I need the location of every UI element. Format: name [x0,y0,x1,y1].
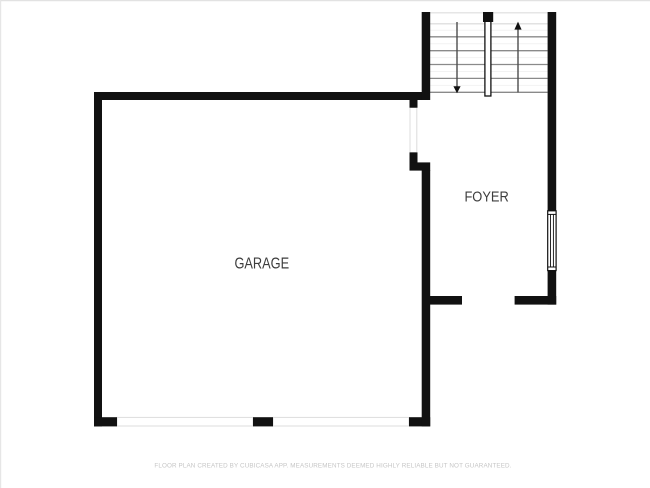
svg-text:FOYER: FOYER [464,189,508,205]
svg-text:FLOOR PLAN CREATED BY CUBICASA: FLOOR PLAN CREATED BY CUBICASA APP. MEAS… [154,463,511,470]
svg-text:GARAGE: GARAGE [234,255,289,273]
